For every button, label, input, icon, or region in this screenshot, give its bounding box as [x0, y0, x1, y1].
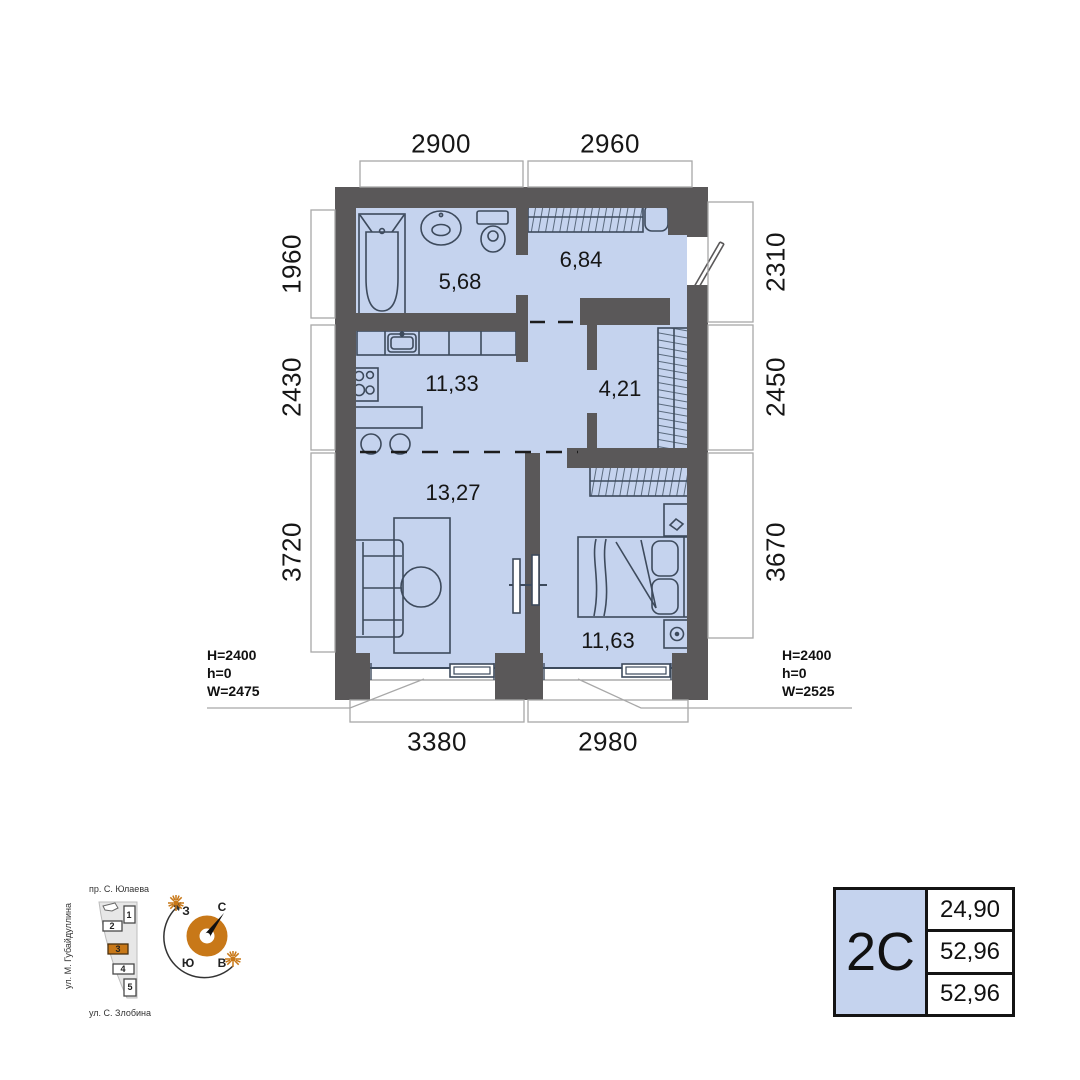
pier-left [335, 653, 370, 700]
wardrobe-rack-icon [658, 328, 690, 452]
room-area-bedroom: 11,63 [581, 628, 634, 654]
wall-top [335, 187, 708, 208]
pier-center [495, 653, 543, 700]
entrance-door [687, 233, 724, 289]
dim-top-1: 2900 [411, 129, 471, 160]
compass-center [204, 933, 210, 939]
bedroom-wardrobe-icon [590, 466, 690, 496]
dim-left-1: 1960 [277, 234, 308, 294]
dim-right-3: 3670 [761, 522, 792, 582]
dim-right-1: 2310 [761, 232, 792, 292]
window-left-height: H=2400 [207, 646, 260, 664]
area-value: 52,96 [928, 932, 1012, 974]
window-left-width: W=2475 [207, 682, 260, 700]
building-1-number: 1 [126, 910, 131, 920]
dim-bottom-1: 3380 [407, 727, 467, 758]
dim-right-2: 2450 [761, 357, 792, 417]
pier-right [672, 653, 708, 700]
compass [164, 895, 241, 978]
room-area-wardrobe: 4,21 [599, 376, 642, 402]
dim-top-2: 2960 [580, 129, 640, 160]
dim-bottom-2: 2980 [578, 727, 638, 758]
area-total-value: 52,96 [928, 975, 1012, 1014]
sun-icon [225, 951, 241, 967]
area-living-value: 24,90 [928, 890, 1012, 932]
wall-bathroom-right-a [516, 208, 528, 255]
street-bottom-label: ул. С. Злобина [89, 1008, 151, 1018]
floor-plan-page: 2900 2960 1960 2430 3720 2310 2450 3670 … [0, 0, 1080, 1080]
apartment-type-badge: 2С [836, 890, 928, 1014]
street-left-label: ул. М. Губайдуллина [63, 903, 73, 989]
wall-bedroom-top [567, 448, 708, 468]
apartment-areas: 24,90 52,96 52,96 [928, 890, 1012, 1014]
wall-bathroom-bottom [335, 313, 528, 331]
wall-wardrobe-left-b [587, 413, 597, 453]
wall-left [335, 187, 356, 697]
window-right-height: H=2400 [782, 646, 835, 664]
dim-left-2: 2430 [277, 357, 308, 417]
compass-east-label: В [218, 956, 227, 970]
entrance-pilaster [668, 187, 708, 235]
building-4-number: 4 [120, 964, 125, 974]
room-area-hallway: 6,84 [560, 247, 603, 273]
room-area-living: 13,27 [425, 480, 480, 506]
window-right-spec: H=2400 h=0 W=2525 [782, 646, 835, 700]
building-2-number: 2 [109, 921, 114, 931]
street-top-label: пр. С. Юлаева [89, 884, 149, 894]
dim-left-3: 3720 [277, 522, 308, 582]
wall-hallway-bottom [580, 298, 670, 325]
building-3-number: 3 [115, 944, 120, 954]
building-5-number: 5 [127, 982, 132, 992]
wall-kitchen-right [516, 313, 528, 362]
window-right-width: W=2525 [782, 682, 835, 700]
window-left-spec: H=2400 h=0 W=2475 [207, 646, 260, 700]
compass-west-label: З [182, 904, 190, 918]
compass-north-label: С [218, 900, 227, 914]
apartment-info-table: 2С 24,90 52,96 52,96 [833, 887, 1015, 1017]
wall-right-lower [687, 287, 708, 697]
wall-bathroom-right-b [516, 295, 528, 313]
wall-wardrobe-left-a [587, 325, 597, 370]
room-area-bathroom: 5,68 [439, 269, 482, 295]
window-right-sill: h=0 [782, 664, 835, 682]
room-area-kitchen: 11,33 [425, 371, 478, 397]
compass-south-label: Ю [182, 956, 194, 970]
window-left-sill: h=0 [207, 664, 260, 682]
